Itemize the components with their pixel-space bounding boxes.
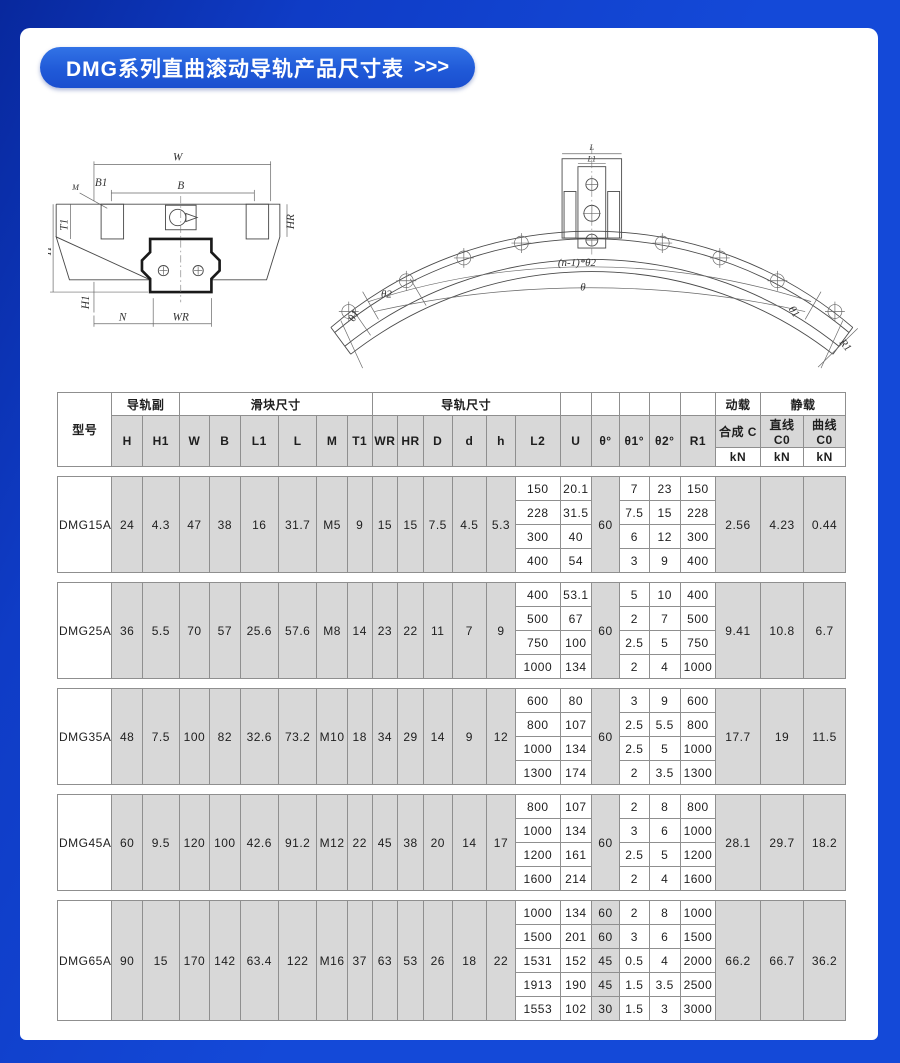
header-sub-dim: M [317, 416, 347, 467]
header-sub-dim: L2 [515, 416, 560, 467]
dim-cell: 7 [452, 583, 486, 679]
header-sub-dim: H [112, 416, 142, 467]
dim-cell: 142 [210, 901, 240, 1021]
r1-cell: 1600 [680, 867, 715, 891]
r1-cell: 800 [680, 795, 715, 819]
theta2-cell: 4 [649, 949, 680, 973]
theta-cell: 60 [591, 689, 619, 785]
l2-cell: 1600 [515, 867, 560, 891]
load-cell: 18.2 [804, 795, 846, 891]
theta2-cell: 3.5 [649, 973, 680, 997]
theta2-cell: 5 [649, 737, 680, 761]
load-cell: 11.5 [804, 689, 846, 785]
r1-cell: 800 [680, 713, 715, 737]
r1-cell: 228 [680, 501, 715, 525]
dim-cell: 20 [423, 795, 452, 891]
header-sub-dim: HR [398, 416, 424, 467]
dim-cell: 16 [240, 477, 278, 573]
u-cell: 134 [560, 819, 591, 843]
header-sub-dim: θ2° [649, 416, 680, 467]
dim-label-n: N [118, 312, 127, 324]
theta2-cell: 4 [649, 655, 680, 679]
dim-label-wr: WR [173, 312, 189, 324]
r1-cell: 300 [680, 525, 715, 549]
dim-label-theta2: θ2 [381, 289, 392, 301]
table-row: DMG45A609.512010042.691.2M12224538201417… [58, 795, 846, 819]
dim-cell: 9.5 [142, 795, 179, 891]
dim-cell: 12 [487, 689, 516, 785]
dim-cell: 170 [179, 901, 209, 1021]
u-cell: 67 [560, 607, 591, 631]
u-cell: 152 [560, 949, 591, 973]
dim-cell: 15 [142, 901, 179, 1021]
table-row: DMG15A244.347381631.7M5915157.54.55.3150… [58, 477, 846, 501]
u-cell: 214 [560, 867, 591, 891]
dim-cell: 47 [179, 477, 209, 573]
dim-label-b1: B1 [95, 177, 107, 189]
header-sub-dim: B [210, 416, 240, 467]
dim-cell: 25.6 [240, 583, 278, 679]
header-sub-dim: T1 [347, 416, 372, 467]
header-sub-dim: H1 [142, 416, 179, 467]
table-row: DMG25A365.5705725.657.6M8142322117940053… [58, 583, 846, 607]
dim-label-n-theta2: (n-1)*θ2 [558, 257, 597, 269]
l2-cell: 1531 [515, 949, 560, 973]
dim-label-m: M [71, 183, 80, 192]
u-cell: 54 [560, 549, 591, 573]
dim-cell: 63.4 [240, 901, 278, 1021]
dim-cell: 36 [112, 583, 142, 679]
dim-cell: 11 [423, 583, 452, 679]
l2-cell: 600 [515, 689, 560, 713]
theta2-cell: 8 [649, 901, 680, 925]
u-cell: 31.5 [560, 501, 591, 525]
dim-cell: 26 [423, 901, 452, 1021]
spec-table-header: 型号 导轨副 滑块尺寸 导轨尺寸 动载 静载 HH1WBL1LMT1WRHRDd… [57, 392, 846, 467]
dim-cell: 24 [112, 477, 142, 573]
dim-cell: 14 [452, 795, 486, 891]
dim-label-r1: R1 [836, 336, 854, 354]
header-rail-dims: 导轨尺寸 [372, 393, 560, 416]
r1-cell: 3000 [680, 997, 715, 1021]
dim-cell: 100 [210, 795, 240, 891]
dim-cell: 42.6 [240, 795, 278, 891]
dim-cell: 22 [347, 795, 372, 891]
theta1-cell: 2 [619, 655, 649, 679]
r1-cell: 600 [680, 689, 715, 713]
dim-cell: 122 [278, 901, 316, 1021]
r1-cell: 1500 [680, 925, 715, 949]
load-cell: 28.1 [716, 795, 761, 891]
theta1-cell: 2.5 [619, 631, 649, 655]
load-cell: 36.2 [804, 901, 846, 1021]
l2-cell: 228 [515, 501, 560, 525]
dim-cell: M16 [317, 901, 347, 1021]
dim-label-l1: L1 [587, 155, 596, 164]
theta1-cell: 3 [619, 689, 649, 713]
dim-cell: M10 [317, 689, 347, 785]
page-title: DMG系列直曲滚动导轨产品尺寸表 [66, 53, 404, 83]
theta2-cell: 5 [649, 631, 680, 655]
theta1-cell: 2.5 [619, 713, 649, 737]
theta2-cell: 9 [649, 689, 680, 713]
model-group-DMG35A: DMG35A487.51008232.673.2M101834291491260… [57, 688, 846, 785]
l2-cell: 400 [515, 549, 560, 573]
theta-cell: 60 [591, 583, 619, 679]
dim-cell: 23 [372, 583, 398, 679]
dim-cell: 37 [347, 901, 372, 1021]
l2-cell: 1000 [515, 737, 560, 761]
load-cell: 10.8 [760, 583, 803, 679]
l2-cell: 1200 [515, 843, 560, 867]
load-cell: 9.41 [716, 583, 761, 679]
u-cell: 134 [560, 655, 591, 679]
dim-cell: 57.6 [278, 583, 316, 679]
r1-cell: 1200 [680, 843, 715, 867]
dim-label-b: B [177, 180, 184, 192]
load-cell: 66.7 [760, 901, 803, 1021]
r1-cell: 2500 [680, 973, 715, 997]
dim-cell: M12 [317, 795, 347, 891]
theta2-cell: 5 [649, 843, 680, 867]
model-cell: DMG25A [58, 583, 112, 679]
model-group-DMG65A: DMG65A901517014263.4122M1637635326182210… [57, 900, 846, 1021]
dim-cell: 18 [347, 689, 372, 785]
theta2-cell: 3 [649, 997, 680, 1021]
unit-cell: kN [804, 448, 846, 467]
u-cell: 80 [560, 689, 591, 713]
theta1-cell: 3 [619, 549, 649, 573]
linear-guide-cross-section-drawing: W B B1 M [48, 134, 303, 349]
theta1-cell: 2 [619, 795, 649, 819]
theta1-cell: 3 [619, 819, 649, 843]
r1-cell: 2000 [680, 949, 715, 973]
u-cell: 53.1 [560, 583, 591, 607]
dim-cell: 4.3 [142, 477, 179, 573]
header-model: 型号 [58, 393, 112, 467]
header-rail-pair: 导轨副 [112, 393, 179, 416]
l2-cell: 1300 [515, 761, 560, 785]
theta1-cell: 2 [619, 901, 649, 925]
table-row: DMG35A487.51008232.673.2M101834291491260… [58, 689, 846, 713]
load-cell: 6.7 [804, 583, 846, 679]
load-cell: 2.56 [716, 477, 761, 573]
dim-cell: 70 [179, 583, 209, 679]
theta2-cell: 6 [649, 925, 680, 949]
header-block-dims: 滑块尺寸 [179, 393, 372, 416]
curved-rail-drawing: L L1 θ2 (n-1)*θ2 θ θ1 θ1 R1 [317, 134, 868, 370]
theta2-cell: 23 [649, 477, 680, 501]
r1-cell: 1300 [680, 761, 715, 785]
theta1-cell: 2 [619, 867, 649, 891]
dim-cell: 90 [112, 901, 142, 1021]
model-cell: DMG15A [58, 477, 112, 573]
theta1-cell: 1.5 [619, 997, 649, 1021]
u-cell: 190 [560, 973, 591, 997]
header-load-linear: 直线 C0 [760, 416, 803, 448]
l2-cell: 400 [515, 583, 560, 607]
dim-cell: 5.5 [142, 583, 179, 679]
l2-cell: 500 [515, 607, 560, 631]
dim-cell: 15 [398, 477, 424, 573]
model-group-DMG45A: DMG45A609.512010042.691.2M12224538201417… [57, 794, 846, 891]
dim-label-theta: θ [581, 282, 587, 294]
header-sub-dim: U [560, 416, 591, 467]
theta2-cell: 15 [649, 501, 680, 525]
r1-cell: 1000 [680, 819, 715, 843]
theta1-cell: 2.5 [619, 737, 649, 761]
table-row: DMG65A901517014263.4122M1637635326182210… [58, 901, 846, 925]
title-banner: DMG系列直曲滚动导轨产品尺寸表 >>> [40, 47, 475, 88]
theta1-cell: 6 [619, 525, 649, 549]
dim-cell: 18 [452, 901, 486, 1021]
theta1-cell: 7 [619, 477, 649, 501]
dim-label-theta1-right: θ1 [786, 304, 802, 320]
dim-cell: 34 [372, 689, 398, 785]
theta-cell: 45 [591, 949, 619, 973]
spec-table-area: 型号 导轨副 滑块尺寸 导轨尺寸 动载 静载 HH1WBL1LMT1WRHRDd… [57, 392, 846, 1021]
header-dynamic-load: 动载 [716, 393, 761, 416]
load-cell: 0.44 [804, 477, 846, 573]
load-cell: 66.2 [716, 901, 761, 1021]
theta-cell: 30 [591, 997, 619, 1021]
model-cell: DMG45A [58, 795, 112, 891]
header-sub-dim: D [423, 416, 452, 467]
load-cell: 4.23 [760, 477, 803, 573]
u-cell: 102 [560, 997, 591, 1021]
l2-cell: 1000 [515, 819, 560, 843]
u-cell: 100 [560, 631, 591, 655]
header-sub-dim: θ° [591, 416, 619, 467]
theta-cell: 60 [591, 901, 619, 925]
l2-cell: 1000 [515, 901, 560, 925]
dim-cell: 91.2 [278, 795, 316, 891]
theta1-cell: 3 [619, 925, 649, 949]
header-static-load: 静载 [760, 393, 845, 416]
u-cell: 161 [560, 843, 591, 867]
technical-drawings: W B B1 M [48, 134, 868, 374]
table-groups: DMG15A244.347381631.7M5915157.54.55.3150… [57, 476, 846, 1021]
r1-cell: 150 [680, 477, 715, 501]
dim-cell: 120 [179, 795, 209, 891]
dim-cell: 9 [452, 689, 486, 785]
theta1-cell: 7.5 [619, 501, 649, 525]
header-sub-dim: L1 [240, 416, 278, 467]
theta1-cell: 5 [619, 583, 649, 607]
dim-cell: 63 [372, 901, 398, 1021]
dim-cell: 22 [398, 583, 424, 679]
theta-cell: 60 [591, 925, 619, 949]
dim-cell: 100 [179, 689, 209, 785]
dim-cell: 14 [423, 689, 452, 785]
header-spacer-cell [680, 393, 715, 416]
dim-label-w: W [173, 151, 184, 163]
l2-cell: 1500 [515, 925, 560, 949]
dim-cell: M5 [317, 477, 347, 573]
r1-cell: 400 [680, 549, 715, 573]
dim-cell: 73.2 [278, 689, 316, 785]
dim-cell: 14 [347, 583, 372, 679]
dim-cell: 53 [398, 901, 424, 1021]
dim-cell: 7.5 [423, 477, 452, 573]
theta-cell: 45 [591, 973, 619, 997]
theta2-cell: 12 [649, 525, 680, 549]
theta2-cell: 9 [649, 549, 680, 573]
dim-cell: 5.3 [487, 477, 516, 573]
l2-cell: 300 [515, 525, 560, 549]
dim-cell: 15 [372, 477, 398, 573]
dim-label-l: L [589, 143, 595, 152]
dim-cell: 32.6 [240, 689, 278, 785]
dim-cell: 29 [398, 689, 424, 785]
u-cell: 134 [560, 737, 591, 761]
theta2-cell: 7 [649, 607, 680, 631]
theta-cell: 60 [591, 795, 619, 891]
header-spacer-cell [560, 393, 591, 416]
theta1-cell: 2 [619, 607, 649, 631]
model-cell: DMG35A [58, 689, 112, 785]
dim-cell: 82 [210, 689, 240, 785]
l2-cell: 800 [515, 713, 560, 737]
dim-cell: 48 [112, 689, 142, 785]
u-cell: 134 [560, 901, 591, 925]
dim-cell: M8 [317, 583, 347, 679]
header-sub-dim: θ1° [619, 416, 649, 467]
header-sub-dim: WR [372, 416, 398, 467]
u-cell: 107 [560, 713, 591, 737]
header-spacer-cell [649, 393, 680, 416]
l2-cell: 1553 [515, 997, 560, 1021]
u-cell: 174 [560, 761, 591, 785]
u-cell: 40 [560, 525, 591, 549]
model-cell: DMG65A [58, 901, 112, 1021]
theta1-cell: 0.5 [619, 949, 649, 973]
unit-cell: kN [716, 448, 761, 467]
header-spacer-cell [619, 393, 649, 416]
dim-cell: 7.5 [142, 689, 179, 785]
dim-cell: 45 [372, 795, 398, 891]
r1-cell: 400 [680, 583, 715, 607]
header-sub-dim: R1 [680, 416, 715, 467]
dim-cell: 57 [210, 583, 240, 679]
load-cell: 17.7 [716, 689, 761, 785]
theta2-cell: 3.5 [649, 761, 680, 785]
header-load-curve: 曲线 C0 [804, 416, 846, 448]
theta1-cell: 2 [619, 761, 649, 785]
header-sub-dim: h [487, 416, 516, 467]
r1-cell: 1000 [680, 737, 715, 761]
dim-label-t1: T1 [58, 219, 70, 231]
u-cell: 201 [560, 925, 591, 949]
dim-cell: 60 [112, 795, 142, 891]
dim-cell: 17 [487, 795, 516, 891]
header-sub-dim: L [278, 416, 316, 467]
header-sub-dim: d [452, 416, 486, 467]
theta2-cell: 8 [649, 795, 680, 819]
l2-cell: 750 [515, 631, 560, 655]
dim-label-h1: H1 [80, 295, 92, 310]
theta-cell: 60 [591, 477, 619, 573]
load-cell: 29.7 [760, 795, 803, 891]
r1-cell: 500 [680, 607, 715, 631]
dim-cell: 9 [347, 477, 372, 573]
header-sub-dim: W [179, 416, 209, 467]
dim-label-h: H [48, 246, 54, 256]
theta2-cell: 10 [649, 583, 680, 607]
r1-cell: 750 [680, 631, 715, 655]
model-group-DMG15A: DMG15A244.347381631.7M5915157.54.55.3150… [57, 476, 846, 573]
dim-cell: 9 [487, 583, 516, 679]
dim-cell: 38 [210, 477, 240, 573]
theta2-cell: 4 [649, 867, 680, 891]
dim-cell: 31.7 [278, 477, 316, 573]
load-cell: 19 [760, 689, 803, 785]
dim-cell: 22 [487, 901, 516, 1021]
l2-cell: 1913 [515, 973, 560, 997]
dim-cell: 4.5 [452, 477, 486, 573]
dim-cell: 38 [398, 795, 424, 891]
theta1-cell: 1.5 [619, 973, 649, 997]
unit-cell: kN [760, 448, 803, 467]
r1-cell: 1000 [680, 655, 715, 679]
u-cell: 20.1 [560, 477, 591, 501]
header-spacer-cell [591, 393, 619, 416]
theta2-cell: 5.5 [649, 713, 680, 737]
l2-cell: 800 [515, 795, 560, 819]
l2-cell: 150 [515, 477, 560, 501]
u-cell: 107 [560, 795, 591, 819]
theta1-cell: 2.5 [619, 843, 649, 867]
r1-cell: 1000 [680, 901, 715, 925]
chevron-right-icons: >>> [414, 56, 449, 79]
l2-cell: 1000 [515, 655, 560, 679]
model-group-DMG25A: DMG25A365.5705725.657.6M8142322117940053… [57, 582, 846, 679]
header-load-synthetic: 合成 C [716, 416, 761, 448]
content-panel: DMG系列直曲滚动导轨产品尺寸表 >>> W B B1 M [20, 28, 878, 1040]
dim-label-hr: HR [285, 214, 297, 230]
theta2-cell: 6 [649, 819, 680, 843]
